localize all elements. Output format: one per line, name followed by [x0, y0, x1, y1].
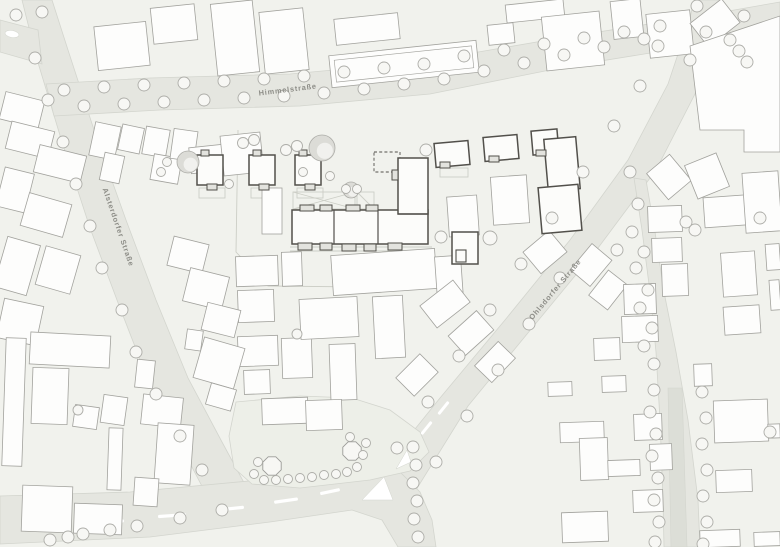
tree-octagon — [263, 457, 281, 475]
tree — [515, 258, 527, 270]
tree — [342, 185, 351, 194]
tree-shaded-highlight — [184, 158, 198, 172]
tree — [292, 329, 302, 339]
context-building — [648, 205, 683, 232]
tree — [10, 9, 22, 21]
tree — [538, 38, 550, 50]
tree — [398, 78, 410, 90]
tree — [624, 166, 636, 178]
context-building — [661, 264, 688, 297]
context-building — [262, 397, 309, 425]
project-building — [398, 158, 428, 214]
tree — [733, 45, 745, 57]
tree — [422, 396, 434, 408]
tree — [174, 512, 186, 524]
tree — [638, 340, 650, 352]
context-building — [210, 0, 259, 76]
tree — [577, 166, 589, 178]
tree — [326, 172, 335, 181]
project-balcony — [346, 205, 360, 211]
context-building — [262, 188, 282, 234]
tree — [362, 439, 371, 448]
tree — [174, 430, 186, 442]
tree — [250, 470, 259, 479]
tree — [98, 81, 110, 93]
tree — [296, 474, 305, 483]
project-balcony — [305, 184, 315, 190]
tree — [411, 495, 423, 507]
context-building — [305, 399, 342, 430]
tree — [299, 168, 308, 177]
context-building — [100, 394, 128, 425]
tree — [225, 180, 234, 189]
tree — [57, 136, 69, 148]
context-building — [541, 11, 604, 71]
tree — [646, 450, 658, 462]
tree — [359, 451, 368, 460]
context-building — [447, 195, 480, 237]
tree — [343, 468, 352, 477]
site-plan-canvas: Himmelstraße Alsterdorfer Straße Ohlsdor… — [0, 0, 780, 547]
tree — [608, 120, 620, 132]
tree — [701, 516, 713, 528]
tree — [492, 364, 504, 376]
context-building — [754, 532, 780, 547]
tree — [430, 456, 442, 468]
tree — [546, 212, 558, 224]
project-balcony — [300, 205, 314, 211]
context-building — [185, 329, 204, 351]
tree — [58, 84, 70, 96]
tree — [696, 438, 708, 450]
tree — [308, 473, 317, 482]
context-building — [31, 367, 69, 424]
tree — [358, 83, 370, 95]
tree — [238, 92, 250, 104]
tree — [249, 135, 260, 146]
tree — [724, 34, 736, 46]
tree — [320, 471, 329, 480]
tree — [158, 96, 170, 108]
tree — [648, 494, 660, 506]
context-building — [244, 370, 271, 395]
tree — [458, 50, 470, 62]
tree — [218, 75, 230, 87]
context-building — [281, 337, 312, 378]
context-building — [594, 338, 621, 361]
context-building — [490, 175, 529, 225]
context-building — [2, 338, 26, 467]
context-building — [29, 332, 111, 368]
context-building — [769, 280, 780, 311]
context-building — [372, 295, 405, 358]
tree — [42, 94, 54, 106]
tree — [654, 20, 666, 32]
context-building — [237, 289, 274, 322]
project-balcony — [259, 184, 269, 190]
tree — [378, 62, 390, 74]
tree — [689, 224, 701, 236]
project-balcony — [489, 156, 499, 162]
project-balcony — [320, 243, 332, 250]
tree — [163, 158, 172, 167]
project-balcony — [440, 162, 450, 168]
tree — [131, 520, 143, 532]
project-building — [249, 155, 275, 185]
tree — [284, 475, 293, 484]
tree — [518, 57, 530, 69]
tree — [741, 56, 753, 68]
project-balcony — [342, 244, 356, 251]
tree — [408, 513, 420, 525]
tree — [272, 476, 281, 485]
tree — [611, 244, 623, 256]
tree — [435, 231, 447, 243]
tree — [691, 0, 703, 12]
site-plan: Himmelstraße Alsterdorfer Straße Ohlsdor… — [0, 0, 780, 547]
tree — [353, 463, 362, 472]
tree — [298, 70, 310, 82]
context-building — [281, 252, 302, 287]
project-balcony — [364, 244, 376, 251]
tree — [407, 441, 419, 453]
tree — [258, 73, 270, 85]
tree — [410, 459, 422, 471]
tree — [157, 168, 166, 177]
tree — [118, 98, 130, 110]
tree — [598, 41, 610, 53]
context-building — [135, 359, 156, 389]
tree — [281, 145, 292, 156]
tree — [638, 246, 650, 258]
tree — [338, 66, 350, 78]
tree — [96, 262, 108, 274]
tree — [78, 100, 90, 112]
context-building — [487, 23, 515, 46]
tree — [696, 386, 708, 398]
tree — [453, 350, 465, 362]
tree — [578, 32, 590, 44]
tree — [318, 87, 330, 99]
tree — [84, 220, 96, 232]
context-building — [154, 423, 194, 485]
tree — [700, 26, 712, 38]
tree — [44, 534, 56, 546]
tree — [77, 528, 89, 540]
tree — [483, 231, 497, 245]
tree — [644, 406, 656, 418]
tree — [292, 141, 303, 152]
tree — [150, 388, 162, 400]
project-balcony — [536, 150, 546, 156]
context-building — [765, 244, 780, 271]
tree — [346, 433, 355, 442]
project-balcony — [298, 243, 312, 250]
context-building — [694, 364, 713, 387]
project-building — [292, 210, 428, 244]
context-building — [723, 305, 761, 335]
tree — [653, 516, 665, 528]
tree — [632, 198, 644, 210]
tree — [412, 531, 424, 543]
tree — [738, 10, 750, 22]
project-building — [483, 135, 519, 162]
tree — [461, 410, 473, 422]
tree — [420, 144, 432, 156]
context-building — [716, 469, 753, 492]
tree — [478, 65, 490, 77]
context-building — [608, 459, 641, 476]
tree — [353, 185, 362, 194]
tree — [438, 73, 450, 85]
context-building — [142, 126, 170, 158]
tree — [418, 58, 430, 70]
project-balcony — [392, 170, 398, 180]
tree — [70, 178, 82, 190]
tree — [498, 44, 510, 56]
tree — [626, 226, 638, 238]
tree — [697, 538, 709, 547]
tree — [73, 405, 83, 415]
tree — [332, 470, 341, 479]
tree — [701, 464, 713, 476]
tree — [638, 33, 650, 45]
context-building — [713, 399, 768, 443]
project-balcony — [207, 184, 217, 190]
tree — [196, 464, 208, 476]
project-balcony — [201, 150, 209, 156]
tree — [29, 52, 41, 64]
tree — [634, 80, 646, 92]
project-balcony — [366, 205, 378, 211]
tree — [648, 358, 660, 370]
tree — [104, 524, 116, 536]
tree — [254, 458, 263, 467]
tree — [558, 49, 570, 61]
tree — [700, 412, 712, 424]
project-building — [434, 141, 470, 168]
context-building — [561, 511, 608, 543]
context-building — [94, 21, 150, 70]
tree — [630, 262, 642, 274]
context-building — [107, 428, 123, 490]
tree — [238, 138, 249, 149]
context-building — [235, 255, 278, 286]
tree — [116, 304, 128, 316]
tree — [652, 40, 664, 52]
project-building — [197, 155, 223, 185]
tree — [260, 476, 269, 485]
context-building — [331, 248, 438, 295]
context-building — [299, 297, 359, 340]
tree — [697, 490, 709, 502]
tree — [198, 94, 210, 106]
tree — [649, 536, 661, 547]
context-building — [579, 438, 608, 481]
tree — [62, 531, 74, 543]
tree — [764, 426, 776, 438]
tree — [642, 284, 654, 296]
context-building — [21, 485, 73, 533]
tree — [36, 6, 48, 18]
tree — [407, 477, 419, 489]
context-building — [133, 477, 159, 507]
context-building — [259, 8, 309, 74]
context-building — [602, 376, 627, 393]
context-building — [721, 251, 758, 297]
project-balcony — [320, 205, 332, 211]
tree — [648, 384, 660, 396]
tree — [130, 346, 142, 358]
tree — [138, 79, 150, 91]
tree — [484, 304, 496, 316]
tree-octagon — [343, 442, 361, 460]
tree — [216, 504, 228, 516]
project-building — [544, 137, 580, 192]
tree — [652, 472, 664, 484]
tree — [634, 302, 646, 314]
tree — [754, 212, 766, 224]
context-building — [652, 237, 683, 262]
context-building — [150, 4, 198, 44]
tree — [178, 77, 190, 89]
project-balcony — [253, 150, 261, 156]
context-building — [646, 10, 694, 58]
project-building — [538, 184, 582, 233]
context-building — [548, 382, 572, 397]
project-balcony — [388, 243, 402, 250]
tree — [646, 322, 658, 334]
tree — [684, 54, 696, 66]
context-building — [329, 344, 357, 401]
tree-shaded-highlight — [317, 143, 333, 159]
tree — [391, 442, 403, 454]
tree — [650, 428, 662, 440]
tree — [618, 26, 630, 38]
